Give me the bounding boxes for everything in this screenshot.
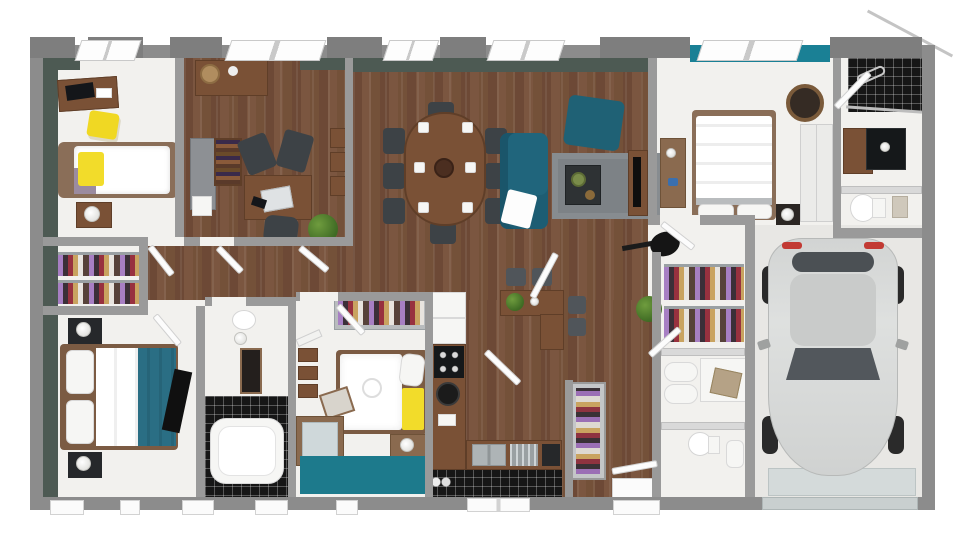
wall	[139, 246, 148, 315]
wardrobe	[800, 124, 833, 222]
door-gap	[212, 297, 246, 306]
wall-pillar	[327, 37, 382, 58]
wall	[345, 58, 353, 246]
accent-wall-bedroom-2	[43, 315, 58, 497]
mirror-cabinet	[240, 348, 262, 394]
cooktop	[434, 346, 464, 378]
decor	[666, 148, 676, 158]
bottles	[430, 472, 456, 492]
wall-shelf	[298, 384, 318, 398]
double-sink	[472, 444, 506, 466]
coffee-machine	[542, 444, 560, 466]
pillow	[398, 353, 426, 388]
wall	[841, 228, 922, 238]
window	[697, 40, 804, 61]
wall	[745, 215, 755, 497]
shoe-rows	[576, 388, 600, 474]
wall-pillar	[440, 37, 486, 58]
dish-rack	[510, 444, 538, 466]
accent-wall-closet	[43, 246, 58, 306]
window-sill	[50, 500, 84, 515]
decor-bowl	[228, 66, 238, 76]
wall-pillar	[600, 37, 690, 58]
garage-door	[762, 497, 918, 510]
wall	[661, 348, 745, 356]
fridge	[430, 292, 466, 344]
car-roof	[790, 274, 876, 346]
entry-threshold	[613, 500, 660, 515]
teal-rug	[300, 456, 428, 494]
towel	[892, 196, 908, 218]
place-setting	[418, 122, 429, 133]
wall-pillar	[170, 37, 222, 58]
round-basin	[436, 382, 460, 406]
window-sill	[182, 500, 214, 515]
window	[225, 40, 327, 61]
place-setting	[462, 202, 473, 213]
clothes-rack	[664, 264, 744, 300]
yellow-blanket	[402, 388, 424, 430]
cutting-board	[438, 414, 456, 426]
accent-wall-bedroom-1	[43, 58, 58, 237]
yellow-chair	[86, 110, 120, 140]
yellow-pillow	[78, 152, 104, 186]
decor	[400, 438, 414, 452]
decor	[668, 178, 678, 186]
ceiling-light	[234, 332, 247, 345]
window	[383, 40, 440, 61]
window	[75, 40, 142, 61]
pillow	[66, 400, 94, 444]
island-stool	[568, 318, 586, 336]
place-setting	[465, 162, 476, 173]
glass-desktop	[302, 422, 338, 460]
wall	[661, 422, 745, 430]
wall	[288, 297, 296, 497]
place-setting	[414, 162, 425, 173]
dining-chair	[383, 198, 405, 224]
wall-shelf	[298, 348, 318, 362]
printer	[192, 196, 212, 216]
lamp	[76, 456, 91, 471]
wall-shelf	[330, 128, 346, 148]
car-taillight	[864, 242, 884, 249]
television	[633, 157, 641, 207]
clothes-rack	[58, 252, 140, 276]
papers	[96, 88, 112, 98]
laundry-bin	[664, 384, 698, 404]
lamp	[781, 208, 794, 221]
car-taillight	[782, 242, 802, 249]
laundry-bin	[664, 362, 698, 382]
island-stool	[506, 268, 526, 286]
clothes-rack	[58, 280, 140, 304]
floor-plan-render	[0, 0, 960, 540]
window	[487, 40, 566, 61]
ottoman	[563, 94, 625, 151]
island-plant	[506, 293, 524, 311]
car-rear-window	[792, 252, 874, 272]
wall	[43, 306, 139, 315]
wall	[648, 58, 657, 215]
exterior-wall-left	[30, 45, 43, 510]
wall-pillar	[830, 37, 922, 58]
centerpiece	[434, 158, 454, 178]
wall	[565, 380, 573, 497]
wall	[841, 186, 922, 194]
car-windshield	[786, 348, 880, 380]
toilet	[232, 310, 256, 330]
basket	[200, 64, 220, 84]
decor-plate	[585, 190, 595, 200]
kitchen-window	[467, 498, 530, 512]
toilet-tank	[708, 436, 720, 454]
wall-shelf	[330, 152, 346, 172]
wall-shelf	[298, 366, 318, 380]
window-sill	[255, 500, 288, 515]
place-setting	[418, 202, 429, 213]
wall	[425, 292, 433, 497]
window-sill	[336, 500, 358, 515]
round-cushion	[362, 378, 382, 398]
dining-chair	[383, 163, 405, 189]
window-sill	[120, 500, 140, 515]
wall	[175, 58, 184, 237]
wall-shelf	[330, 176, 346, 196]
exterior-wall-right	[922, 45, 935, 510]
island-stool	[568, 296, 586, 314]
decor-plate	[571, 172, 586, 187]
pillow	[66, 350, 94, 394]
round-lounge-chair	[786, 84, 824, 122]
hand-basin	[726, 440, 744, 468]
door-gap	[200, 237, 234, 246]
wall-pillar	[30, 37, 75, 58]
wall	[833, 45, 841, 238]
wall	[43, 237, 353, 246]
dining-chair	[383, 128, 405, 154]
door-gap	[300, 292, 338, 301]
bed-duvet	[696, 116, 772, 200]
basin	[880, 142, 890, 152]
white-lamp	[84, 206, 100, 222]
wall	[196, 306, 205, 497]
laundry-basket	[710, 367, 743, 398]
bathtub-basin	[218, 426, 276, 476]
toilet-tank	[872, 198, 886, 218]
lamp	[76, 322, 91, 337]
place-setting	[462, 122, 473, 133]
breakfast-island-leg	[540, 314, 564, 350]
